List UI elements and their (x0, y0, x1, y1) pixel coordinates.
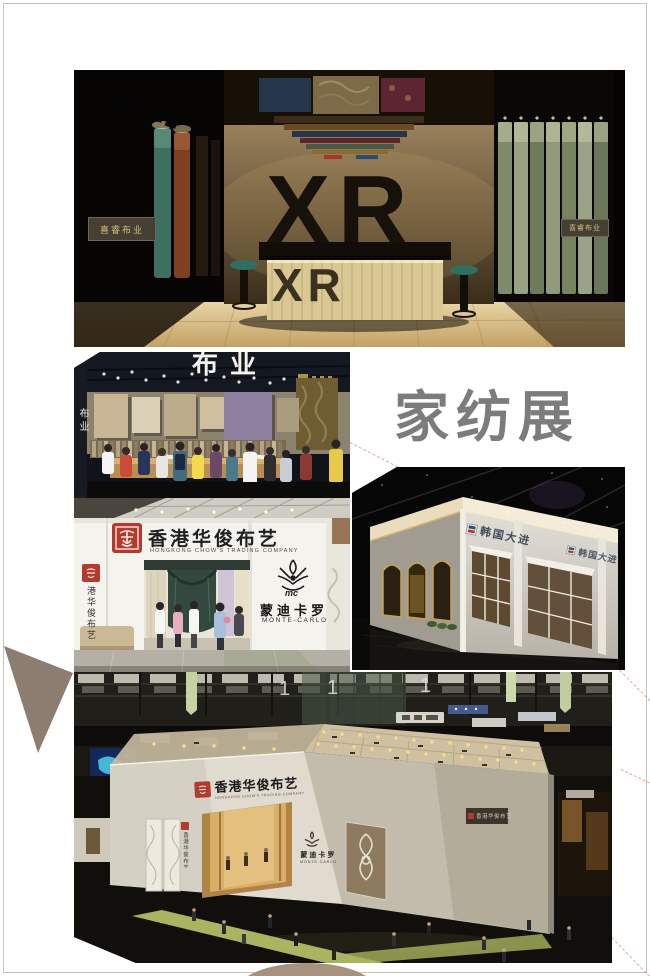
huajun-seal-logo (112, 523, 142, 553)
daejin-logo-icon (465, 522, 478, 535)
huajun-pillar-text: 港华俊布艺 (85, 586, 98, 641)
aerial-monte-block: 蒙迪卡罗 MONTE-CARLO (300, 830, 337, 864)
photo-huajun-booth: 香港华俊布艺 HONGKONG CHOW'S TRADING COMPANY 港… (74, 498, 350, 672)
aerial-wall-sign: 香港华俊布艺 (466, 808, 508, 824)
window-grid-1 (469, 545, 513, 627)
xr-desk-logo: XR (272, 262, 346, 308)
aerial-monte-en: MONTE-CARLO (300, 860, 337, 864)
xr-plaque-left: 喜睿布业 (88, 217, 156, 241)
taupe-triangle-decoration (3, 645, 75, 755)
aerial-pillar-sign: 香港华俊布艺 (181, 822, 189, 868)
aerial-illustration (74, 672, 612, 963)
dotted-mark-1 (350, 442, 399, 467)
photo-xr-booth: 喜睿布业 喜睿布业 XR XR (74, 70, 625, 347)
right-curtains (498, 116, 608, 294)
monte-carlo-crest-icon: mc (270, 556, 316, 598)
monte-carlo-en: MONTE-CARLO (262, 617, 328, 624)
banner-number-1b: 1 (327, 677, 338, 700)
xr-plaque-right-text: 喜睿布业 (569, 223, 601, 233)
photo-crowd: 布业 布业 (74, 352, 350, 498)
banner-number-1a: 1 (279, 678, 290, 701)
crowd-side-text: 布业 (75, 408, 90, 434)
banner-number-1c: 1 (420, 675, 431, 698)
taupe-arc-decoration (237, 963, 377, 976)
aerial-pillar-text: 香港华俊布艺 (181, 832, 189, 868)
daejin-illustration (352, 467, 625, 670)
aerial-pillar-seal (181, 822, 189, 830)
xr-wall-logo: XR (266, 162, 415, 258)
dotted-mark-4 (611, 937, 650, 976)
svg-text:mc: mc (285, 588, 298, 598)
huajun-pillar-seal (82, 564, 100, 582)
right-distant-booths (558, 790, 612, 896)
aerial-monte-crest-icon (300, 830, 324, 850)
booth-front-face (110, 752, 342, 904)
gold-arches (383, 561, 451, 621)
huajun-brand-cn: 香港华俊布艺 (148, 524, 280, 551)
aerial-wall-sign-text: 香港华俊布艺 (476, 812, 512, 820)
brochure-page: 喜睿布业 喜睿布业 XR XR (0, 0, 650, 976)
seal-glyph (115, 526, 139, 550)
aerial-wall-seal (468, 813, 474, 819)
aerial-seal-logo (194, 781, 211, 798)
dotted-mark-3 (621, 769, 650, 783)
photo-daejin-building: 韩国大进 韩国大进 (352, 467, 625, 670)
daejin-logo-icon-2 (566, 545, 577, 556)
photo-aerial-hall: 1 1 1 香港华俊布艺 HONGKONG CHOW'S TRADING COM… (74, 672, 612, 963)
aerial-monte-cn: 蒙迪卡罗 (300, 850, 337, 860)
huajun-brand-en: HONGKONG CHOW'S TRADING COMPANY (150, 548, 299, 554)
xr-plaque-left-text: 喜睿布业 (100, 223, 144, 236)
xr-plaque-right: 喜睿布业 (561, 219, 609, 237)
page-title: 家纺展 (394, 372, 580, 452)
dotted-mark-2 (619, 670, 650, 701)
crowd-header-text: 布业 (192, 352, 268, 381)
